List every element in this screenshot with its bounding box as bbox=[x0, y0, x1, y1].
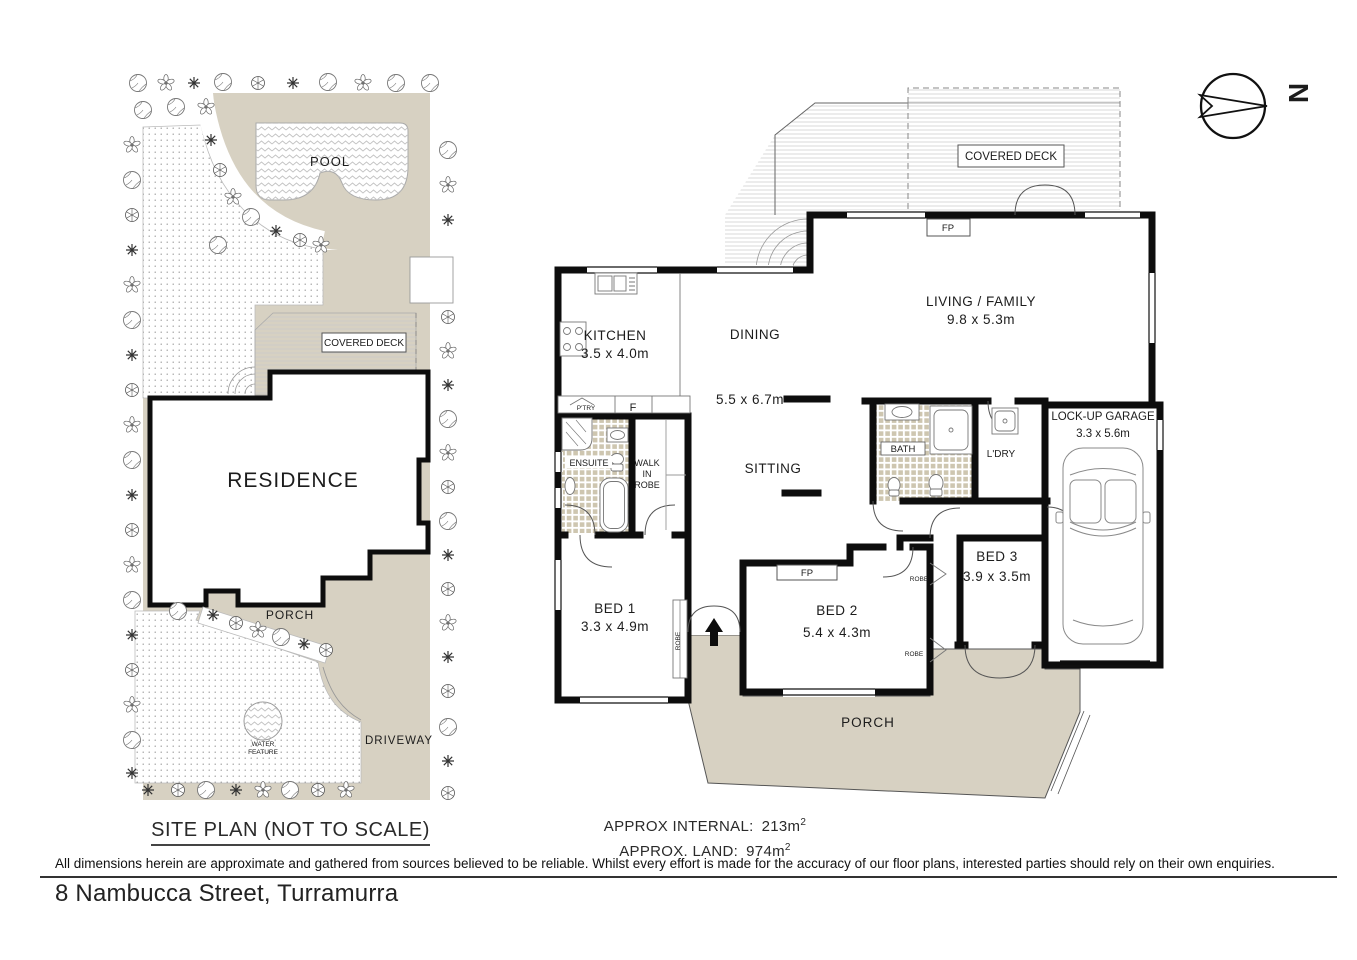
fp-label-living: FP bbox=[942, 223, 954, 234]
property-address: 8 Nambucca Street, Turramurra bbox=[55, 880, 398, 908]
open-dim: 5.5 x 6.7m bbox=[716, 392, 784, 407]
laundry-fittings bbox=[992, 408, 1018, 434]
site-plan-title: SITE PLAN (NOT TO SCALE) bbox=[118, 819, 463, 846]
approx-land-sup: 2 bbox=[785, 842, 791, 853]
fridge-label: F bbox=[630, 402, 637, 414]
garage-label: LOCK-UP GARAGE bbox=[1051, 411, 1155, 423]
garage-car bbox=[1056, 448, 1150, 644]
ensuite-label: ENSUITE bbox=[569, 458, 608, 468]
approx-internal-line: APPROX INTERNAL:213m2 bbox=[540, 812, 870, 837]
wir-label1: WALK bbox=[634, 458, 659, 468]
floor-plan: PORCH COVERED DECK bbox=[540, 60, 1340, 820]
site-plan-title-text: SITE PLAN (NOT TO SCALE) bbox=[151, 819, 430, 846]
bed1-label: BED 1 bbox=[594, 601, 636, 616]
laundry-label: L'DRY bbox=[987, 449, 1016, 460]
living-label: LIVING / FAMILY bbox=[926, 294, 1036, 309]
sitting-label: SITTING bbox=[745, 461, 802, 476]
bath-label: BATH bbox=[891, 444, 916, 455]
kitchen-dim: 3.5 x 4.0m bbox=[581, 346, 649, 361]
site-residence-label: RESIDENCE bbox=[227, 469, 359, 492]
site-porch-label: PORCH bbox=[266, 608, 314, 622]
fp-label-bed2: FP bbox=[801, 568, 813, 579]
disclaimer: All dimensions herein are approximate an… bbox=[40, 856, 1337, 878]
kitchen-label: KITCHEN bbox=[584, 328, 647, 343]
water-feature-label2: FEATURE bbox=[248, 749, 279, 756]
dining-label: DINING bbox=[730, 327, 780, 342]
pantry-label: P'TRY bbox=[577, 405, 596, 412]
fp-porch-label: PORCH bbox=[841, 715, 895, 730]
wir-label3: ROBE bbox=[634, 480, 660, 490]
robe-label-bed1: ROBE bbox=[675, 631, 682, 650]
robe-label-1: ROBE bbox=[910, 576, 929, 583]
wir-label2: IN bbox=[643, 469, 652, 479]
floorplan-page: POOL COVERED DECK RESIDENCE PORCH DRIVEW… bbox=[0, 0, 1357, 960]
approx-internal-sup: 2 bbox=[800, 817, 806, 828]
bed3-label: BED 3 bbox=[976, 549, 1018, 564]
bed2-dim: 5.4 x 4.3m bbox=[803, 625, 871, 640]
compass-n-label: N bbox=[1283, 83, 1314, 103]
pool-label: POOL bbox=[310, 154, 350, 169]
site-driveway-label: DRIVEWAY bbox=[365, 735, 433, 747]
approx-internal-label: APPROX INTERNAL: bbox=[604, 818, 754, 835]
site-covered-deck-label: COVERED DECK bbox=[324, 338, 404, 349]
site-shed bbox=[410, 257, 453, 303]
compass: N bbox=[1200, 74, 1314, 138]
area-summary: APPROX INTERNAL:213m2 APPROX. LAND:974m2 bbox=[540, 812, 870, 862]
fp-covered-deck-label: COVERED DECK bbox=[965, 151, 1057, 163]
garage-dim: 3.3 x 5.6m bbox=[1076, 428, 1130, 440]
living-dim: 9.8 x 5.3m bbox=[947, 312, 1015, 327]
approx-internal-value: 213m bbox=[762, 818, 801, 835]
site-plan: POOL COVERED DECK RESIDENCE PORCH DRIVEW… bbox=[118, 55, 463, 815]
robe-label-2: ROBE bbox=[905, 651, 924, 658]
bed1-dim: 3.3 x 4.9m bbox=[581, 619, 649, 634]
water-feature-label: WATER bbox=[252, 741, 275, 748]
bed2-label: BED 2 bbox=[816, 603, 858, 618]
bed3-dim: 3.9 x 3.5m bbox=[963, 569, 1031, 584]
